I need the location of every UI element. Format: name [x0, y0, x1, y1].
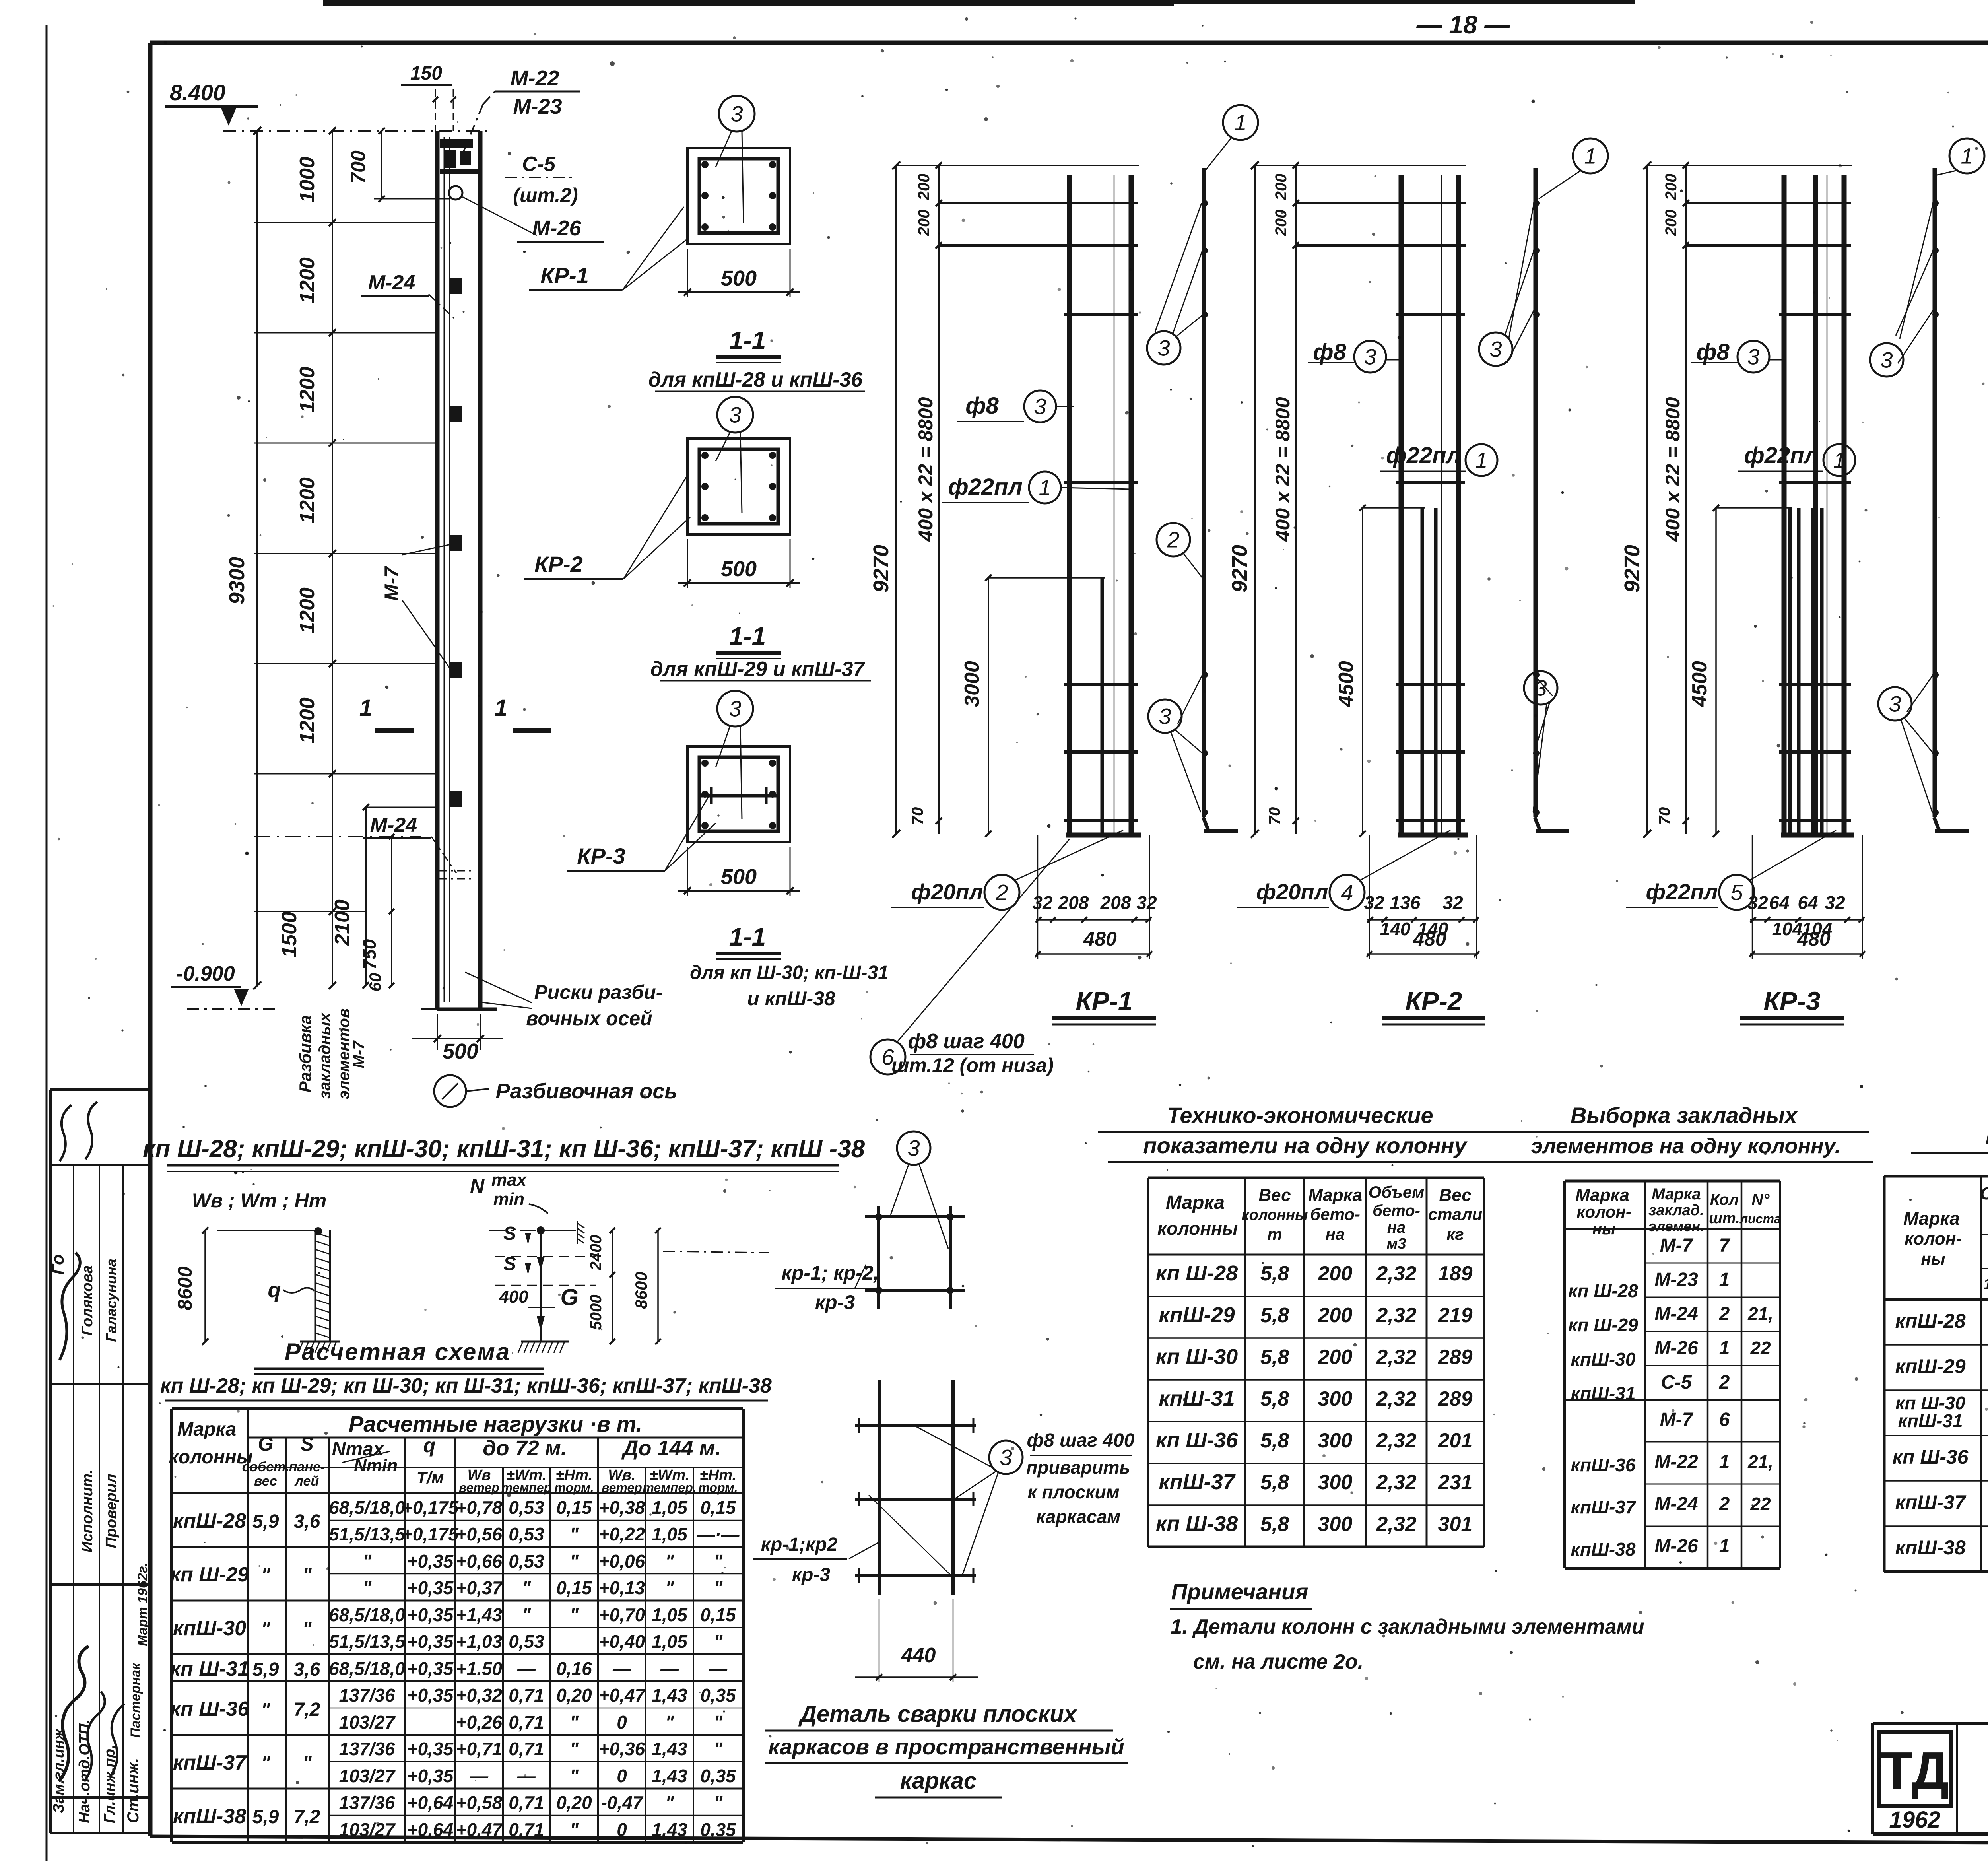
svg-text:1200: 1200: [296, 257, 319, 303]
svg-text:max: max: [491, 1170, 527, 1190]
svg-text:": ": [570, 1605, 579, 1625]
svg-text:500: 500: [721, 865, 757, 889]
svg-text:12пл: 12пл: [1983, 1276, 1988, 1293]
svg-text:21,: 21,: [1747, 1451, 1773, 1472]
svg-text:1: 1: [1719, 1536, 1730, 1557]
svg-text:4: 4: [1341, 880, 1353, 905]
svg-text:+0,36: +0,36: [599, 1739, 645, 1759]
svg-text:0,20: 0,20: [556, 1792, 592, 1813]
svg-text:+1,43: +1,43: [456, 1605, 503, 1625]
svg-text:5,9: 5,9: [252, 1659, 279, 1680]
svg-text:2,32: 2,32: [1376, 1513, 1416, 1536]
svg-text:темпер: темпер: [501, 1480, 551, 1495]
svg-text:200: 200: [915, 210, 933, 237]
svg-text:70: 70: [909, 807, 926, 825]
svg-text:0,71: 0,71: [509, 1792, 544, 1813]
svg-text:1200: 1200: [296, 477, 319, 523]
svg-text:301: 301: [1438, 1513, 1473, 1536]
svg-text:М-22: М-22: [510, 66, 559, 90]
svg-text:7,2: 7,2: [294, 1807, 320, 1828]
svg-text:5,8: 5,8: [1260, 1513, 1289, 1536]
svg-text:элемен.: элемен.: [1648, 1218, 1704, 1234]
svg-text:0,71: 0,71: [509, 1685, 544, 1706]
svg-text:до 72 м.: до 72 м.: [483, 1436, 567, 1460]
svg-text:М-24: М-24: [1654, 1303, 1698, 1325]
svg-text:208: 208: [1100, 892, 1131, 913]
svg-text:кп Ш-36: кп Ш-36: [1156, 1428, 1238, 1452]
svg-text:+0,37: +0,37: [456, 1577, 503, 1598]
svg-text:+0,22: +0,22: [599, 1524, 645, 1544]
svg-text:32: 32: [1825, 892, 1845, 913]
svg-text:ф22пл: ф22пл: [1386, 443, 1460, 468]
svg-text:1: 1: [1833, 448, 1845, 473]
svg-text:1: 1: [1719, 1451, 1730, 1472]
svg-text:приварить: приварить: [1026, 1457, 1130, 1478]
svg-text:21,: 21,: [1747, 1303, 1773, 1324]
svg-text:+0,35: +0,35: [407, 1605, 454, 1625]
svg-text:С-5: С-5: [522, 153, 556, 176]
svg-text:М-7: М-7: [1660, 1235, 1694, 1256]
svg-text:": ": [522, 1605, 531, 1625]
svg-text:22: 22: [1750, 1338, 1771, 1358]
svg-text:300: 300: [1318, 1429, 1353, 1452]
svg-text:на: на: [1326, 1225, 1345, 1243]
svg-text:кпШ-30: кпШ-30: [1571, 1349, 1636, 1370]
svg-text:кп Ш-38: кп Ш-38: [1156, 1512, 1238, 1536]
svg-text:кпШ-36: кпШ-36: [1571, 1455, 1636, 1475]
svg-text:Объем: Объем: [1369, 1183, 1425, 1201]
svg-text:6: 6: [1719, 1409, 1730, 1430]
svg-text:ны: ны: [1921, 1249, 1945, 1268]
svg-text:КР-1: КР-1: [1076, 986, 1132, 1016]
svg-text:0,16: 0,16: [556, 1658, 592, 1679]
svg-text:М-24: М-24: [368, 271, 415, 294]
svg-text:Риски разби-: Риски разби-: [534, 981, 663, 1003]
svg-text:бето-: бето-: [1310, 1205, 1360, 1224]
svg-text:": ": [570, 1524, 579, 1544]
svg-text:закладных: закладных: [316, 1012, 334, 1099]
svg-text:+0,175: +0,175: [402, 1524, 459, 1544]
svg-text:1,43: 1,43: [652, 1766, 687, 1786]
svg-text:200: 200: [1662, 210, 1680, 237]
svg-text:70: 70: [1266, 807, 1283, 825]
svg-text:700: 700: [347, 150, 369, 184]
svg-text:9300: 9300: [225, 557, 249, 604]
svg-text:+0,40: +0,40: [599, 1631, 645, 1652]
svg-text:51,5/13,5: 51,5/13,5: [329, 1524, 406, 1544]
svg-text:5,8: 5,8: [1260, 1429, 1289, 1452]
svg-text:+0,47: +0,47: [456, 1819, 503, 1840]
svg-text:1,43: 1,43: [652, 1685, 687, 1706]
svg-text:кг: кг: [1446, 1225, 1464, 1243]
svg-text:КР-1: КР-1: [540, 263, 589, 288]
svg-text:1: 1: [1039, 475, 1051, 500]
svg-text:кп Ш-31: кп Ш-31: [170, 1657, 249, 1680]
svg-text:200: 200: [915, 174, 933, 201]
svg-text:1,05: 1,05: [652, 1605, 688, 1625]
svg-text:189: 189: [1438, 1262, 1473, 1285]
svg-text:231: 231: [1438, 1471, 1473, 1494]
svg-text:400 х 22 = 8800: 400 х 22 = 8800: [1272, 397, 1294, 542]
svg-text:ветер: ветер: [602, 1480, 642, 1495]
svg-text:Примечания: Примечания: [1171, 1579, 1309, 1604]
svg-text:": ": [570, 1766, 579, 1786]
svg-text:32: 32: [1364, 892, 1384, 913]
svg-text:0,53: 0,53: [509, 1497, 544, 1518]
svg-text:кп Ш-28: кп Ш-28: [1568, 1280, 1638, 1301]
svg-text:колон-: колон-: [1576, 1202, 1631, 1221]
svg-text:1,43: 1,43: [652, 1739, 687, 1759]
svg-text:3: 3: [730, 101, 743, 126]
svg-text:3: 3: [1889, 692, 1901, 717]
svg-text:": ": [665, 1712, 674, 1733]
svg-text:0,15: 0,15: [700, 1497, 736, 1518]
svg-text:60: 60: [366, 973, 384, 992]
svg-text:5,8: 5,8: [1260, 1346, 1289, 1369]
svg-text:2: 2: [1719, 1494, 1730, 1515]
svg-text:Расчетные нагрузки ·в т.: Расчетные нагрузки ·в т.: [349, 1411, 642, 1436]
svg-text:Марка: Марка: [1166, 1192, 1225, 1213]
svg-text:М-26: М-26: [532, 216, 581, 240]
svg-text:кр-1;кр2: кр-1;кр2: [761, 1534, 838, 1555]
svg-text:Марка: Марка: [1308, 1185, 1362, 1205]
svg-text:кп Ш-28; кпШ-29; кпШ-30; кпШ-3: кп Ш-28; кпШ-29; кпШ-30; кпШ-31; кп Ш-36…: [143, 1135, 865, 1163]
svg-text:кр-3: кр-3: [815, 1291, 855, 1313]
svg-text:До 144 м.: До 144 м.: [621, 1436, 721, 1460]
svg-text:шт.12 (от низа): шт.12 (от низа): [891, 1054, 1054, 1076]
svg-text:— 18 —: — 18 —: [1416, 10, 1510, 39]
svg-text:2,32: 2,32: [1376, 1429, 1416, 1452]
svg-text:С-5: С-5: [1661, 1372, 1692, 1393]
svg-text:1-1: 1-1: [729, 622, 766, 651]
svg-text:кпШ-29: кпШ-29: [1895, 1355, 1965, 1377]
svg-text:22: 22: [1750, 1494, 1771, 1514]
svg-text:5: 5: [1730, 880, 1743, 905]
svg-text:min: min: [493, 1189, 524, 1209]
svg-text:1: 1: [359, 695, 372, 721]
svg-text:т: т: [1267, 1225, 1282, 1243]
svg-text:2: 2: [995, 880, 1008, 905]
svg-text:(шт.2): (шт.2): [513, 184, 578, 206]
svg-text:—: —: [517, 1766, 536, 1786]
svg-text:3: 3: [1159, 704, 1171, 729]
svg-text:5000: 5000: [587, 1295, 605, 1330]
svg-text:М-7: М-7: [381, 566, 403, 601]
svg-text:3: 3: [1157, 336, 1170, 361]
svg-text:—·—: —·—: [696, 1524, 740, 1544]
svg-text:": ": [665, 1792, 674, 1813]
svg-text:кпШ-31: кпШ-31: [1159, 1387, 1235, 1410]
svg-text:": ": [261, 1565, 271, 1586]
svg-text:колон-: колон-: [1905, 1229, 1962, 1249]
svg-text:3,6: 3,6: [294, 1511, 320, 1532]
svg-text:Марка: Марка: [177, 1419, 236, 1440]
svg-text:500: 500: [443, 1039, 478, 1063]
svg-text:М-24: М-24: [1654, 1494, 1698, 1515]
svg-text:+1,03: +1,03: [456, 1631, 503, 1652]
svg-text:М-26: М-26: [1654, 1536, 1698, 1557]
svg-text:1: 1: [1719, 1269, 1730, 1290]
svg-text:7: 7: [1719, 1235, 1731, 1256]
svg-text:кпШ-31: кпШ-31: [1898, 1410, 1963, 1431]
svg-text:2400: 2400: [587, 1235, 605, 1271]
svg-text:—: —: [709, 1658, 728, 1679]
svg-text:+0,71: +0,71: [456, 1739, 502, 1759]
svg-text:400: 400: [499, 1287, 528, 1307]
svg-text:5,9: 5,9: [252, 1511, 279, 1532]
svg-text:+0,35: +0,35: [407, 1577, 454, 1598]
svg-text:ны: ны: [1592, 1220, 1615, 1238]
svg-text:1500: 1500: [278, 911, 301, 958]
svg-text:103/27: 103/27: [339, 1766, 396, 1786]
svg-text:торм.: торм.: [554, 1480, 594, 1495]
svg-text:1,43: 1,43: [652, 1819, 687, 1840]
svg-text:и кпШ-38: и кпШ-38: [747, 987, 835, 1010]
svg-text:5,8: 5,8: [1260, 1262, 1289, 1285]
svg-text:5,9: 5,9: [252, 1807, 279, 1828]
svg-text:2: 2: [1719, 1303, 1730, 1325]
svg-text:1-1: 1-1: [729, 326, 766, 355]
svg-text:листа: листа: [1739, 1212, 1781, 1226]
svg-text:200: 200: [1318, 1304, 1353, 1327]
svg-text:G: G: [560, 1284, 578, 1310]
svg-text:": ": [570, 1739, 579, 1759]
svg-text:-0.900: -0.900: [176, 962, 235, 985]
svg-text:Wв ; Wт ; Нт: Wв ; Wт ; Нт: [192, 1189, 326, 1212]
svg-text:0,53: 0,53: [509, 1524, 544, 1544]
svg-text:колонны: колонны: [1241, 1207, 1308, 1224]
svg-text:1-1: 1-1: [729, 923, 766, 951]
svg-text:вочных осей: вочных осей: [526, 1007, 652, 1030]
svg-text:кп Ш-28: кп Ш-28: [1156, 1261, 1238, 1285]
svg-text:Гл.инж.пр.: Гл.инж.пр.: [101, 1744, 118, 1823]
svg-text:+0,35: +0,35: [407, 1631, 454, 1652]
svg-text:64: 64: [1798, 892, 1818, 913]
svg-text:": ": [261, 1699, 271, 1720]
svg-text:0,35: 0,35: [700, 1819, 736, 1840]
svg-text:кпШ-28: кпШ-28: [1895, 1310, 1965, 1332]
svg-text:Технико-экономические: Технико-экономические: [1167, 1103, 1433, 1128]
svg-text:1,05: 1,05: [652, 1497, 688, 1518]
svg-text:": ": [714, 1631, 723, 1652]
svg-text:q: q: [423, 1434, 436, 1457]
svg-text:": ": [570, 1819, 579, 1840]
svg-text:S: S: [300, 1433, 313, 1455]
svg-text:Марка: Марка: [1903, 1208, 1960, 1229]
svg-text:136: 136: [1390, 892, 1421, 913]
svg-text:500: 500: [721, 557, 757, 581]
svg-text:32: 32: [1136, 892, 1157, 913]
svg-text:137/36: 137/36: [339, 1792, 395, 1813]
svg-text:N°: N°: [1752, 1191, 1770, 1208]
svg-text:для кпШ-28 и кпШ-36: для кпШ-28 и кпШ-36: [648, 368, 863, 391]
svg-text:темпер.: темпер.: [643, 1480, 696, 1495]
svg-text:3: 3: [729, 402, 741, 427]
svg-text:—: —: [612, 1658, 631, 1679]
svg-text:элементов на одну колонну.: элементов на одну колонну.: [1531, 1134, 1840, 1158]
svg-text:0: 0: [617, 1766, 627, 1786]
svg-text:68,5/18,0: 68,5/18,0: [329, 1658, 405, 1679]
svg-text:": ": [522, 1577, 531, 1598]
svg-text:кпШ-31: кпШ-31: [1571, 1383, 1636, 1404]
svg-text:2,32: 2,32: [1376, 1304, 1416, 1327]
svg-text:": ": [303, 1618, 312, 1640]
svg-text:для кпШ-29 и кпШ-37: для кпШ-29 и кпШ-37: [650, 658, 866, 681]
svg-text:0,15: 0,15: [556, 1577, 592, 1598]
svg-text:3000: 3000: [961, 661, 984, 707]
svg-text:1962: 1962: [1889, 1807, 1940, 1833]
svg-text:480: 480: [1797, 928, 1831, 950]
svg-text:64: 64: [1769, 892, 1789, 913]
svg-text:ф8: ф8: [1696, 339, 1730, 365]
svg-text:М-26: М-26: [1654, 1338, 1698, 1359]
svg-text:каркас: каркас: [900, 1768, 977, 1794]
svg-text:—: —: [517, 1658, 536, 1679]
svg-text:": ": [714, 1577, 723, 1598]
svg-text:9270: 9270: [1228, 545, 1252, 592]
svg-text:5,8: 5,8: [1260, 1387, 1289, 1410]
svg-text:+0,58: +0,58: [456, 1792, 503, 1813]
svg-text:ф20пл: ф20пл: [1256, 879, 1328, 904]
svg-text:+0,66: +0,66: [456, 1551, 503, 1572]
svg-text:+1.50: +1.50: [456, 1658, 503, 1679]
svg-text:Выборка закладных: Выборка закладных: [1571, 1103, 1798, 1128]
svg-text:208: 208: [1058, 892, 1089, 913]
svg-text:кр-3: кр-3: [792, 1564, 831, 1585]
svg-text:кпШ-37: кпШ-37: [1571, 1497, 1637, 1517]
svg-text:стали: стали: [1428, 1205, 1482, 1224]
svg-text:+0,47: +0,47: [599, 1685, 646, 1706]
svg-text:кп Ш-29: кп Ш-29: [1568, 1315, 1638, 1335]
svg-text:+0,35: +0,35: [407, 1766, 454, 1786]
svg-text:Nmin: Nmin: [354, 1456, 398, 1475]
svg-text:1,05: 1,05: [652, 1524, 688, 1544]
svg-text:": ": [261, 1618, 271, 1640]
svg-text:201: 201: [1438, 1429, 1473, 1452]
svg-text:ф20пл: ф20пл: [911, 879, 983, 904]
svg-text:200: 200: [1662, 174, 1680, 201]
svg-text:Т/м: Т/м: [417, 1468, 444, 1487]
svg-text:Пастернак: Пастернак: [128, 1662, 143, 1738]
svg-text:": ": [261, 1753, 271, 1774]
svg-text:3: 3: [1747, 344, 1759, 369]
svg-text:200: 200: [1318, 1346, 1353, 1369]
svg-text:М-7: М-7: [350, 1040, 368, 1068]
svg-text:+0,35: +0,35: [407, 1685, 454, 1706]
svg-text:0,35: 0,35: [700, 1766, 736, 1786]
svg-text:к плоским: к плоским: [1027, 1482, 1119, 1502]
svg-text:0,71: 0,71: [509, 1712, 544, 1733]
svg-text:9270: 9270: [1620, 545, 1644, 592]
svg-text:показатели на одну колонну: показатели на одну колонну: [1143, 1133, 1468, 1158]
svg-text:": ": [714, 1712, 723, 1733]
svg-text:1,05: 1,05: [652, 1631, 688, 1652]
svg-text:1. Детали колонн с закладн: 1. Детали колонн с закладными элементами: [1171, 1615, 1644, 1638]
svg-text:+0,26: +0,26: [456, 1712, 503, 1733]
svg-text:пане-: пане-: [289, 1459, 325, 1474]
svg-text:Вес: Вес: [1439, 1185, 1471, 1205]
svg-text:1: 1: [1475, 448, 1487, 473]
svg-text:ф22пл: ф22пл: [1744, 443, 1818, 468]
svg-text:м3: м3: [1386, 1235, 1406, 1252]
svg-text:S: S: [503, 1223, 516, 1244]
svg-text:0: 0: [617, 1819, 627, 1840]
svg-text:Вес: Вес: [1258, 1185, 1291, 1205]
svg-text:": ": [714, 1792, 723, 1813]
svg-text:32: 32: [1032, 892, 1053, 913]
svg-text:+0,35: +0,35: [407, 1658, 454, 1679]
svg-text:0,53: 0,53: [509, 1631, 544, 1652]
svg-text:кп Ш-36: кп Ш-36: [1893, 1446, 1969, 1468]
svg-text:3: 3: [907, 1136, 920, 1161]
svg-text:+0,70: +0,70: [599, 1605, 645, 1625]
svg-text:кп Ш-36: кп Ш-36: [170, 1698, 250, 1721]
svg-text:кр-1; кр-2,: кр-1; кр-2,: [781, 1262, 879, 1284]
svg-text:4500: 4500: [1688, 661, 1711, 707]
svg-text:заклад.: заклад.: [1648, 1202, 1704, 1219]
svg-text:М-7: М-7: [1660, 1409, 1694, 1430]
svg-text:КР-3: КР-3: [1763, 986, 1820, 1016]
svg-text:G: G: [258, 1433, 274, 1455]
svg-text:+0,38: +0,38: [599, 1497, 645, 1518]
svg-text:кпШ-29: кпШ-29: [1159, 1303, 1235, 1327]
svg-text:бето-: бето-: [1373, 1202, 1420, 1220]
svg-text:Разбивочная ось: Разбивочная ось: [496, 1079, 678, 1103]
svg-text:М-22: М-22: [1654, 1451, 1698, 1472]
svg-text:+0,35: +0,35: [407, 1551, 454, 1572]
svg-text:3: 3: [1364, 344, 1376, 369]
svg-text:1: 1: [1961, 144, 1973, 169]
svg-text:кпШ-37: кпШ-37: [1159, 1470, 1236, 1494]
svg-text:103/27: 103/27: [339, 1819, 396, 1840]
svg-text:2,32: 2,32: [1376, 1387, 1416, 1410]
svg-text:кпШ-38: кпШ-38: [173, 1805, 246, 1828]
svg-text:кпШ-37: кпШ-37: [173, 1751, 247, 1774]
svg-text:каркасов в пространственный: каркасов в пространственный: [768, 1734, 1124, 1759]
svg-text:51,5/13,5: 51,5/13,5: [329, 1631, 406, 1652]
svg-text:Исполнит.: Исполнит.: [79, 1470, 96, 1553]
svg-text:3: 3: [729, 696, 741, 721]
svg-text:+0,35: +0,35: [407, 1739, 454, 1759]
svg-text:0,35: 0,35: [700, 1685, 736, 1706]
svg-text:103/27: 103/27: [339, 1712, 396, 1733]
svg-text:2100: 2100: [331, 899, 354, 946]
svg-text:q: q: [268, 1278, 281, 1302]
svg-text:ф22пл: ф22пл: [1646, 879, 1718, 904]
svg-text:750: 750: [359, 939, 380, 969]
svg-text:3: 3: [1000, 1445, 1012, 1470]
svg-text:3: 3: [1034, 394, 1046, 419]
svg-text:-0,47: -0,47: [601, 1792, 644, 1813]
svg-text:70: 70: [1656, 807, 1673, 825]
svg-text:480: 480: [1083, 928, 1117, 950]
svg-text:Марка: Марка: [1575, 1185, 1629, 1205]
svg-text:кпШ-30: кпШ-30: [173, 1617, 246, 1640]
svg-text:0,15: 0,15: [556, 1497, 592, 1518]
svg-text:ф22пл: ф22пл: [948, 474, 1022, 500]
svg-text:кп Ш-30: кп Ш-30: [1156, 1345, 1238, 1369]
svg-text:8600: 8600: [174, 1266, 196, 1310]
svg-text:Выборка стали на одну колонну: Выборка стали на одну колонну (кг): [1986, 1123, 1988, 1149]
svg-text:+0,78: +0,78: [456, 1497, 503, 1518]
svg-text:ТД: ТД: [1881, 1741, 1949, 1800]
svg-text:5,8: 5,8: [1260, 1471, 1289, 1494]
svg-text:кп Ш-29: кп Ш-29: [170, 1563, 249, 1586]
svg-text:для кп Ш-30; кп-Ш-31: для кп Ш-30; кп-Ш-31: [690, 962, 889, 983]
svg-text:1: 1: [1584, 144, 1596, 169]
svg-text:Кол: Кол: [1710, 1191, 1739, 1208]
svg-text:кп Ш-28; кп Ш-29; кп Ш-30; кп: кп Ш-28; кп Ш-29; кп Ш-30; кп Ш-31; кпШ-…: [160, 1374, 772, 1397]
